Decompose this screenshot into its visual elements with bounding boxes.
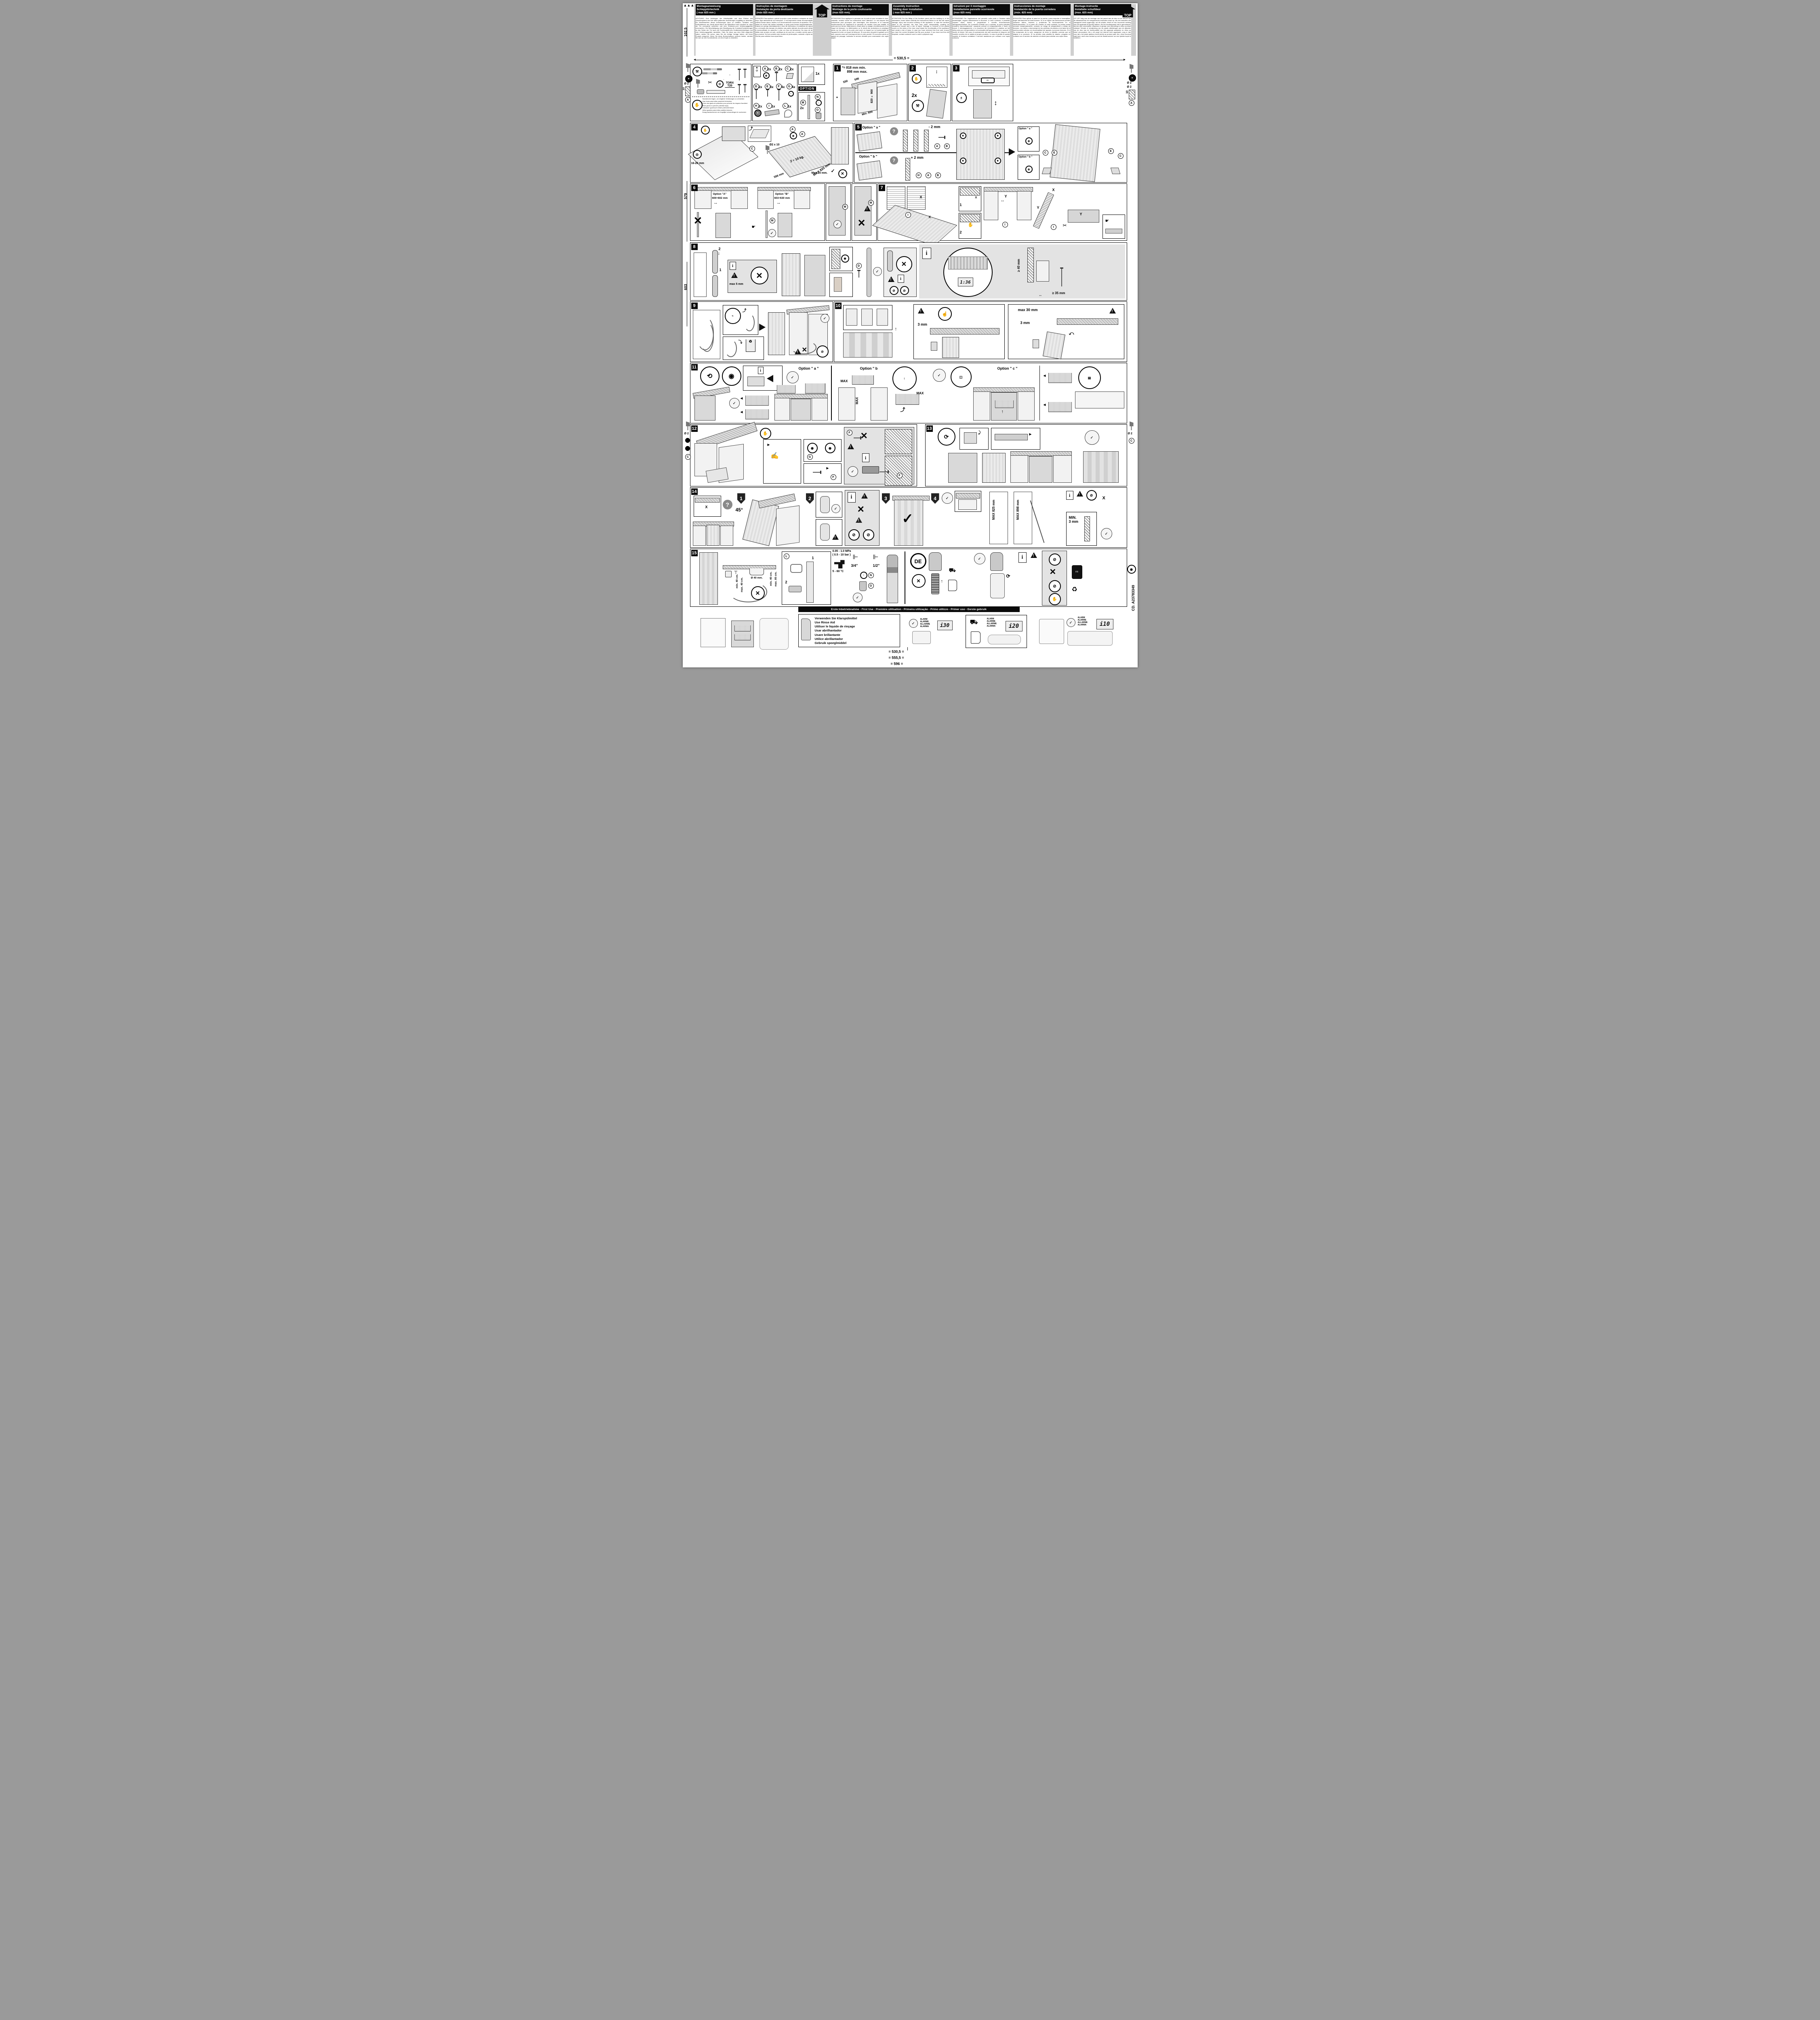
header-title-nl: Montage-instructie Installatie schuifdeu… xyxy=(1074,4,1131,15)
thumbs-up-icon: ✓ xyxy=(1085,430,1099,445)
person-sketch xyxy=(760,618,789,650)
sink-icon xyxy=(749,568,764,575)
header-title-es: Instrucciones de montaje Instalación de … xyxy=(1013,4,1071,15)
header-column-en: Assembly Instruction Sliding door instal… xyxy=(892,4,949,56)
wall-section xyxy=(913,130,918,151)
title-line: Assembly Instruction xyxy=(893,5,948,8)
adjust-arrow: ↕ xyxy=(994,100,997,107)
step-3: 3 ▭ ↕ ± xyxy=(952,64,1013,121)
glove-warnings: Handschuhe tragen, um mögliche Verletzun… xyxy=(703,98,750,114)
hand-tighten-icon xyxy=(990,573,1005,598)
basket-icon xyxy=(852,375,874,385)
latch-plate xyxy=(834,277,842,292)
step-number: 7 xyxy=(879,185,885,191)
screwdriver-adjust-icon: ± xyxy=(956,93,967,103)
rinse-line-es: Utilice abrillantador xyxy=(815,637,857,641)
thumbs-up-icon: ✓ xyxy=(909,619,918,628)
tape-roll-icon: ◎ xyxy=(716,80,724,88)
step-number: 15 xyxy=(691,550,698,556)
clip-detail-circle: ◫ xyxy=(951,366,972,387)
thumbs-up-icon: ✓ xyxy=(787,371,799,383)
strip-diagonal xyxy=(1033,192,1054,229)
screw-icon xyxy=(739,85,740,94)
clip-zoom: ⌁ xyxy=(725,308,741,324)
title-line: (máx. 825 mm) xyxy=(1014,11,1069,15)
rinse-bottle-icon xyxy=(801,619,811,640)
basket-icon xyxy=(777,385,795,393)
side-knob xyxy=(931,342,937,351)
panel-sketch xyxy=(856,160,882,181)
step-number: 12 xyxy=(691,425,698,432)
header-title-pt: Instruções de montagem Instalação da por… xyxy=(755,4,813,15)
option-a-inset: Option " a " ◍ xyxy=(1018,126,1039,151)
side-knob xyxy=(1033,339,1039,348)
gloves-circle-icon: ✋ xyxy=(1049,593,1061,605)
latch-turn-inset: ✓ xyxy=(816,492,842,518)
option-m-strip-icon xyxy=(808,95,810,119)
step-2: 2 ✋ ↕ 2x ⚒ xyxy=(908,64,951,121)
rmargin-depth: 10 xyxy=(1126,90,1129,94)
bin-inset: ♻ ⤵ xyxy=(723,337,764,360)
grommet-icon: ◉ xyxy=(995,133,1001,139)
top-dimension-label: = 530,5 = xyxy=(893,56,911,60)
tap-12-icon: ⊩ xyxy=(873,553,879,561)
info-inset: i max 5 mm ✕ xyxy=(728,260,777,293)
no-pinch-icon: ⊘ xyxy=(890,286,898,295)
step-14: 14 X ? 1 45° 2 ✓ i ✕ ⊘ ⊘ 3 xyxy=(690,487,1127,548)
step-1: 1 *= 818 mm min. 898 mm max. 550 596 820… xyxy=(833,64,907,121)
rinse-line-en: Use Rinse Aid xyxy=(815,621,857,625)
sink-sketch xyxy=(1039,619,1064,644)
part-f-screw-icon xyxy=(778,90,779,101)
recycle-bin-icon: ♻ xyxy=(746,339,755,352)
torx-t20-icon: TORXT20 xyxy=(724,75,736,88)
thumbs-up-icon: ✓ xyxy=(853,593,863,602)
grommet-icon: ◉ xyxy=(960,158,966,164)
adapter-icon xyxy=(859,581,867,591)
drill-icon xyxy=(1130,421,1134,430)
bumper-icon: ◉ xyxy=(825,443,835,453)
margin-depth: 10 xyxy=(683,87,685,90)
alarm-code-display: i10 xyxy=(1096,619,1113,629)
step-6c: M ✕ xyxy=(852,183,877,241)
panel-tilted xyxy=(1050,124,1100,182)
fr-manual-icon: FR xyxy=(1072,565,1082,579)
latch-inset xyxy=(829,273,853,297)
hose-end-icon xyxy=(789,586,802,592)
title-line: (máx 825 mm ) xyxy=(757,11,812,15)
question-icon: ? xyxy=(890,127,898,135)
step-number: 5 xyxy=(855,124,862,130)
basket-icon xyxy=(1048,373,1072,383)
step-number: 3 xyxy=(953,65,959,72)
thumbs-up-icon: ✓ xyxy=(729,398,740,408)
step-number: 11 xyxy=(691,364,698,370)
corner-inset xyxy=(907,186,926,210)
screwdriver-icon xyxy=(703,68,722,70)
hand-icon: ☛ xyxy=(752,224,756,229)
info-strip: i ✕ ⊘ ⊘ xyxy=(845,490,879,546)
no-cut-icon: ⊘ xyxy=(1049,553,1061,566)
bumper-inset: ◉ ◉ G xyxy=(804,439,842,462)
drill-target-icon: + xyxy=(1129,74,1136,82)
screw-inset-1: X 1 xyxy=(959,186,981,211)
max-30mm-box: max 30 mm 3 mm ⤺ xyxy=(1008,304,1124,359)
alarm-block-1: ✓ ALARM ALARME ALLARME ALARMA i30 xyxy=(909,617,957,646)
glove-warning-fr: Porter des gants de protection pour prév… xyxy=(703,103,750,105)
alarm-block-2: ⛟ ALARM ALARME ALLARME ALARMA i20 xyxy=(966,615,1027,648)
title-line: Instrucciones de montaje xyxy=(1014,5,1069,8)
rinse-line-de: Verwenden Sie Klarspülmittel xyxy=(815,617,857,621)
tools-panel: ⚒ TORXT20 ✂ ◎ ✋ Handschuhe tragen, um mö… xyxy=(690,64,751,121)
panel-section xyxy=(1027,248,1034,282)
drill-icon xyxy=(686,421,690,430)
part-l-clamp-icon xyxy=(784,109,792,118)
step-number: 4 xyxy=(691,124,698,130)
margin-dim-603: 603 xyxy=(684,284,688,290)
glove-icon: ✋ xyxy=(760,428,771,439)
spirit-level-icon xyxy=(707,90,725,94)
screw-icon xyxy=(739,70,740,80)
no-hammer-icon: ✕ xyxy=(896,256,912,272)
part-h-washer-icon: ● xyxy=(754,109,762,117)
part-a-ref: A xyxy=(685,97,691,103)
aquastop-head-icon xyxy=(990,552,1003,571)
dishwasher xyxy=(841,88,855,115)
rinse-line-pt: Usar abrilhantador xyxy=(815,629,857,633)
rinse-line-it: Usare brillantante xyxy=(815,633,857,637)
hose-clamp-icon xyxy=(790,564,802,573)
part-d-screw-icon xyxy=(756,90,757,99)
part-b-screw-icon xyxy=(776,73,777,81)
step-13: 13 ⟳ ⤸ ► ✓ xyxy=(925,424,1127,486)
plinth-section xyxy=(1036,261,1049,282)
glove-icon: ✋ xyxy=(692,100,703,110)
alarm-word: ALARMA xyxy=(920,625,930,628)
dishwasher-front xyxy=(778,213,792,237)
warning-strip: F ✕ i ✓ F xyxy=(844,427,914,484)
rinse-line-fr: Utiliser le liquide de rinçage xyxy=(815,625,857,629)
header: Montageanweisung Schlepptürtechnik ( max… xyxy=(694,4,1136,56)
part-a-ref: A xyxy=(1129,100,1134,106)
panel-outline xyxy=(694,253,707,297)
instruction-sheet: ▲▲▲ 102,5 + Ø 2 10 A 579 603 Ø 2 C + Ø 2… xyxy=(683,3,1138,667)
step-6b: M ✓ xyxy=(826,183,851,241)
gap-zoom-circle: 1:36 xyxy=(943,248,993,297)
header-body-pt: ATENÇÃO! Para aplicar o painel na porta … xyxy=(755,18,813,37)
header-title-it: Istruzioni per il montaggio Installazion… xyxy=(953,4,1010,15)
thumbs-up-icon: ✓ xyxy=(768,229,776,237)
part-a-grommet-icon: ◍ xyxy=(763,72,770,79)
x-gap-inset: X xyxy=(694,496,721,517)
manual-book-icon xyxy=(971,631,980,644)
latch-insets xyxy=(843,305,892,330)
option-b-inset: Option " b " ◍ xyxy=(1018,155,1039,180)
no-hammer-inset: ✕ i ⊘ ⊘ xyxy=(884,248,917,297)
next-arrow xyxy=(1009,148,1015,156)
title-line: Instalação da porta deslizante xyxy=(757,8,812,11)
bottom-dim-596: = 596 = xyxy=(891,662,903,666)
cover-strip xyxy=(887,250,893,271)
drill-icon xyxy=(686,63,690,72)
top-orientation-icon: TOP xyxy=(814,4,830,17)
title-line: (max 825 mm). xyxy=(833,11,888,15)
thumbs-up-icon: ✓ xyxy=(873,267,882,276)
peel-inset: ☛ xyxy=(1103,215,1125,239)
grommet-icon: ◍ xyxy=(1025,137,1033,145)
alarm-code-display: i30 xyxy=(937,621,953,630)
substep-arrow: 2 xyxy=(806,493,814,504)
margin-dim-102: 102,5 xyxy=(684,27,688,37)
cart-icon: ⛟ xyxy=(970,619,978,627)
dishwasher-tilted xyxy=(926,89,947,118)
cabinet xyxy=(877,84,897,119)
option-n-ring-icon: ○ xyxy=(816,100,822,106)
title-line: Schlepptürtechnik xyxy=(697,8,752,11)
thumbs-up-icon: ✓ xyxy=(1101,528,1112,539)
no-push-icon: ⊘ xyxy=(863,529,874,541)
install-sketch xyxy=(699,614,792,651)
bracket-icon xyxy=(1042,168,1052,174)
header-body-it: ATTENZIONE! Per l'applicazione del panne… xyxy=(953,18,1010,39)
step-8: 8 2 ↓ 1 i max 5 mm ✕ ◉ D ✓ ✕ i ⊘ xyxy=(690,242,1127,301)
dishwasher xyxy=(973,89,992,118)
part-c-ref: C xyxy=(685,454,691,460)
rotate-detail-circle: ⟲ xyxy=(700,366,720,386)
option-m-strip xyxy=(766,210,768,238)
title-line: (max. 825 mm) xyxy=(1075,11,1130,15)
hose-sketch xyxy=(988,635,1021,644)
step-number: 14 xyxy=(691,488,698,495)
grommet-icon: ◍ xyxy=(790,132,797,139)
clamp-inset: L 1 2 xyxy=(782,551,831,605)
title-line: Instruções de montagem xyxy=(757,5,812,8)
step-6: 6 Option "A" 600÷602 mm ↔ ✕ Option "B" 6… xyxy=(690,183,825,241)
thumbs-up-icon: ✓ xyxy=(831,504,840,513)
header-column-pt: Instruções de montagem Instalação da por… xyxy=(755,4,813,56)
grommet-icon: ◍ xyxy=(1025,166,1033,173)
height-adjust-inset: ↕ xyxy=(926,67,947,88)
header-column-de: Montageanweisung Schlepptürtechnik ( max… xyxy=(696,4,753,56)
drain-sketch xyxy=(1067,631,1113,646)
panel-carried xyxy=(768,312,785,355)
strip-covers xyxy=(867,248,871,297)
camera-icon: ◉ xyxy=(1127,565,1136,574)
thread-stack xyxy=(931,573,939,594)
template-box: 1x xyxy=(798,64,825,85)
margin-dia: Ø 2 xyxy=(684,82,689,85)
rmargin-dia: Ø 2 xyxy=(1127,82,1132,84)
seal-ring-icon: ○ xyxy=(860,572,867,579)
packaging-warning-box: ▲⊘ xyxy=(753,66,761,77)
header-column-it: Istruzioni per il montaggio Installazion… xyxy=(953,4,1010,56)
rinse-line-nl: Gebruik spoeglmiddel xyxy=(815,641,857,645)
step-9: 9 ⌁ ⤴ ♻ ⤵ ✕ ⊘ ✓ xyxy=(690,301,833,362)
step-number: 2 xyxy=(909,65,916,72)
parts-panel: ▲⊘ A2x ◍ B2x C2x D2x E8x F4x G4x ◖ H2x ●… xyxy=(752,64,797,121)
basket-icon xyxy=(745,396,769,406)
spirit-level-icon: ▭ xyxy=(981,78,995,83)
header-body-en: ATTENTION! For the fitting of the furnit… xyxy=(892,18,949,36)
no-tools-icon: ✕ xyxy=(912,574,926,588)
step-5: 5 Option " a " ? - 2 mm A B Option " b "… xyxy=(854,123,1127,183)
power-drill-icon xyxy=(696,79,700,88)
furniture-panel xyxy=(782,253,800,296)
prohibition-strip: ⊘ ✕ ⊘ ✋ xyxy=(1042,551,1067,606)
first-use-text: Erste Inbetriebnahme - First Use - Premi… xyxy=(831,608,987,611)
hook-inset: ◉ xyxy=(829,247,853,271)
step-number: 8 xyxy=(691,244,698,250)
step-4: 4 ✋ ⤴ ◎ 16-26 mm C Ø2 x 10 A A ◍ 2 ÷ 10 … xyxy=(690,123,853,183)
template-option-panel: 1x OPTION M 2x N ○ O xyxy=(798,64,824,120)
rotate-detail-circle: ⟳ xyxy=(938,428,955,446)
worktop-corner xyxy=(872,205,957,246)
title-line: Montage-instructie xyxy=(1075,5,1130,8)
dishwasher-front xyxy=(715,213,731,238)
door-display: 1:36 xyxy=(958,278,973,286)
wrench-icon: ⚒ xyxy=(912,100,924,112)
document-code: CD. A23783349 xyxy=(1131,585,1135,611)
worktop-inset xyxy=(955,491,981,512)
glove-icon: ✋ xyxy=(701,126,710,135)
title-line: Montage de la porte coulissante xyxy=(833,8,888,11)
min-3mm-inset: MIN.3 mm xyxy=(1066,512,1097,546)
hand-icon: ✋ xyxy=(968,222,974,227)
latch-warn-inset xyxy=(816,519,842,546)
option-label: OPTION xyxy=(798,86,816,91)
title-line: Instalación de la puerta corredera xyxy=(1014,8,1069,11)
substep-arrow: 3 xyxy=(882,493,890,504)
step-number: 13 xyxy=(926,425,933,432)
title-line: ( max 825 mm ) xyxy=(893,11,948,15)
basket-icon xyxy=(805,383,825,393)
header-title-de: Montageanweisung Schlepptürtechnik ( max… xyxy=(696,4,753,15)
step-7: 7 X I X X 1 ✋ 2 Y ↔ I X Y I Y ✂ ☛ xyxy=(877,183,1127,241)
basket-icon xyxy=(995,400,1014,408)
header-body-nl: LET OP! Volg voor de montage van het pan… xyxy=(1074,18,1131,39)
panel-sketch xyxy=(856,131,882,151)
header-column-fr: Instructions de montage Montage de la po… xyxy=(831,4,889,56)
title-line: Instructions de montage xyxy=(833,5,888,8)
dishwasher-door xyxy=(948,453,977,483)
aquastop-hose xyxy=(887,555,898,603)
screw-icon xyxy=(938,137,944,138)
step-11: 11 ⟲ ◉ ✓ i ◄ ◄ Option " a " ✓ Option " b… xyxy=(690,363,1127,423)
drill-target-icon: + xyxy=(685,75,692,82)
cabinet xyxy=(858,81,877,114)
header-body-es: ATENCIÓN! Para aplicar el panel en la pu… xyxy=(1013,18,1071,37)
top-label: TOP xyxy=(1124,13,1131,17)
water-tap-sketch xyxy=(912,631,931,644)
title-line: Istruzioni per il montaggio xyxy=(954,5,1009,8)
info-panel-gap: i 1:36 ≥ 40 mm ≥ 35 mm ↔ xyxy=(919,244,1125,299)
thumbs-up-icon: ✓ xyxy=(974,553,985,564)
no-sit-icon: ⊘ xyxy=(848,529,860,541)
header-title-fr: Instructions de montage Montage de la po… xyxy=(831,4,889,15)
scissors-icon: ✂ xyxy=(708,80,712,85)
cover-strip xyxy=(712,250,718,274)
wall-section xyxy=(903,130,908,151)
step-number: 6 xyxy=(691,185,698,191)
tap-34-icon: ⊩ xyxy=(853,553,858,561)
first-use-bar: Erste Inbetriebnahme - First Use - Premi… xyxy=(798,607,1020,612)
option-box: M 2x N ○ O xyxy=(798,92,825,121)
dishwasher-finished xyxy=(1083,451,1119,483)
screw-icon xyxy=(813,472,820,473)
grommet-icon: ◉ xyxy=(960,133,966,139)
aquastop-head-icon xyxy=(929,552,942,571)
margin-dia-g: Ø 2 xyxy=(684,432,689,435)
screw-icon xyxy=(745,70,745,78)
basket-icon xyxy=(1048,402,1072,412)
glove-warning-de: Handschuhe tragen, um mögliche Verletzun… xyxy=(703,98,750,101)
option-o-adapter-icon xyxy=(816,113,821,119)
header-title-en: Assembly Instruction Sliding door instal… xyxy=(892,4,949,15)
part-g-cap-icon: ◖ xyxy=(788,91,794,97)
step-15: 15 ⊤ min. 40 cm. max. 40 cm. Ø 40 mm. ✕ … xyxy=(690,549,1127,607)
screwdriver-icon xyxy=(702,72,717,74)
title-line: Montageanweisung xyxy=(697,5,752,8)
part-c-bracket-icon xyxy=(786,73,793,79)
clip-inset: ⌁ ⤴ xyxy=(723,305,758,335)
push-arrow xyxy=(759,324,766,331)
basket-icon xyxy=(745,409,769,419)
screw-icon xyxy=(858,271,859,278)
rinse-aid-box: Verwenden Sie Klarspülmittel Use Rinse A… xyxy=(798,614,900,647)
thumbs-up-icon: ✓ xyxy=(1067,618,1075,627)
step-number: 10 xyxy=(835,303,842,309)
slide-detail-circle: ↑ xyxy=(892,366,917,391)
glove-icon: ✋ xyxy=(912,74,922,84)
top-label: TOP xyxy=(818,13,825,17)
rotate-detail-circle: ◉ xyxy=(722,366,741,386)
alarm-word: ALARMA xyxy=(1078,624,1088,626)
thumbs-up-icon: ✓ xyxy=(848,466,858,477)
screwdriver-inset: ✍ ► xyxy=(763,439,801,484)
furniture-panel xyxy=(982,453,1006,483)
title-line: Installazione pannello scorrevole xyxy=(954,8,1009,11)
manual-book-icon xyxy=(948,580,957,591)
step-12: 12 ✋ ✍ ► ◉ ◉ G ► F F ✕ i ✓ xyxy=(690,424,917,486)
part-e-screw-icon xyxy=(767,90,768,97)
alarm-word: ALARMA xyxy=(987,625,997,627)
title-line: Sliding door installation xyxy=(893,8,948,11)
power-socket-icon xyxy=(725,571,732,577)
question-icon: ? xyxy=(890,156,898,164)
header-column-es: Instrucciones de montaje Instalación de … xyxy=(1013,4,1071,56)
furniture-panel-upright xyxy=(831,127,849,164)
lever-cross-icon: ✕ xyxy=(751,267,768,284)
no-push-icon: ⊘ xyxy=(900,286,909,295)
kickplate xyxy=(948,257,988,269)
question-icon: ? xyxy=(723,500,732,509)
screw-icon xyxy=(854,438,860,438)
fold-inset: ⤴ xyxy=(748,126,771,142)
step-number: 9 xyxy=(691,303,698,309)
title-line: ( max 825 mm ) xyxy=(697,11,752,15)
gap-3mm-box: ☝ 3 mm xyxy=(913,304,1005,359)
hand-inset-2: ✋ 2 xyxy=(959,213,981,239)
cover-strip xyxy=(712,275,718,297)
hose-cross-icon: ✕ xyxy=(751,586,765,600)
adjuster-foot xyxy=(1061,269,1062,286)
rinse-aid-lines: Verwenden Sie Klarspülmittel Use Rinse A… xyxy=(815,617,857,645)
drill-template-icon xyxy=(801,67,814,82)
screw-icon xyxy=(745,85,745,93)
step-10: 10 ↑ ☝ 3 mm max 30 mm 3 mm ⤺ xyxy=(834,301,1127,362)
kick-icon: ⊘ xyxy=(1086,490,1097,501)
strip-cut xyxy=(1068,210,1099,223)
